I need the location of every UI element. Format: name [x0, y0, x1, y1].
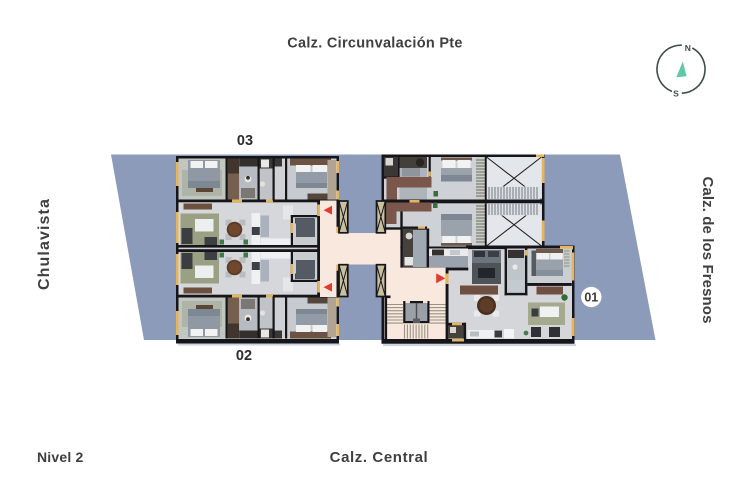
svg-text:01: 01	[584, 291, 598, 305]
svg-text:Calz. de los Fresnos: Calz. de los Fresnos	[699, 176, 716, 323]
svg-text:Calz. Circunvalación Pte: Calz. Circunvalación Pte	[287, 36, 463, 52]
svg-text:S: S	[673, 89, 679, 99]
svg-text:Nivel 2: Nivel 2	[37, 449, 84, 465]
svg-text:Chulavista: Chulavista	[36, 198, 53, 290]
svg-text:02: 02	[236, 348, 252, 364]
svg-text:N: N	[685, 43, 691, 53]
svg-text:Calz. Central: Calz. Central	[330, 449, 429, 466]
svg-text:03: 03	[237, 133, 253, 149]
